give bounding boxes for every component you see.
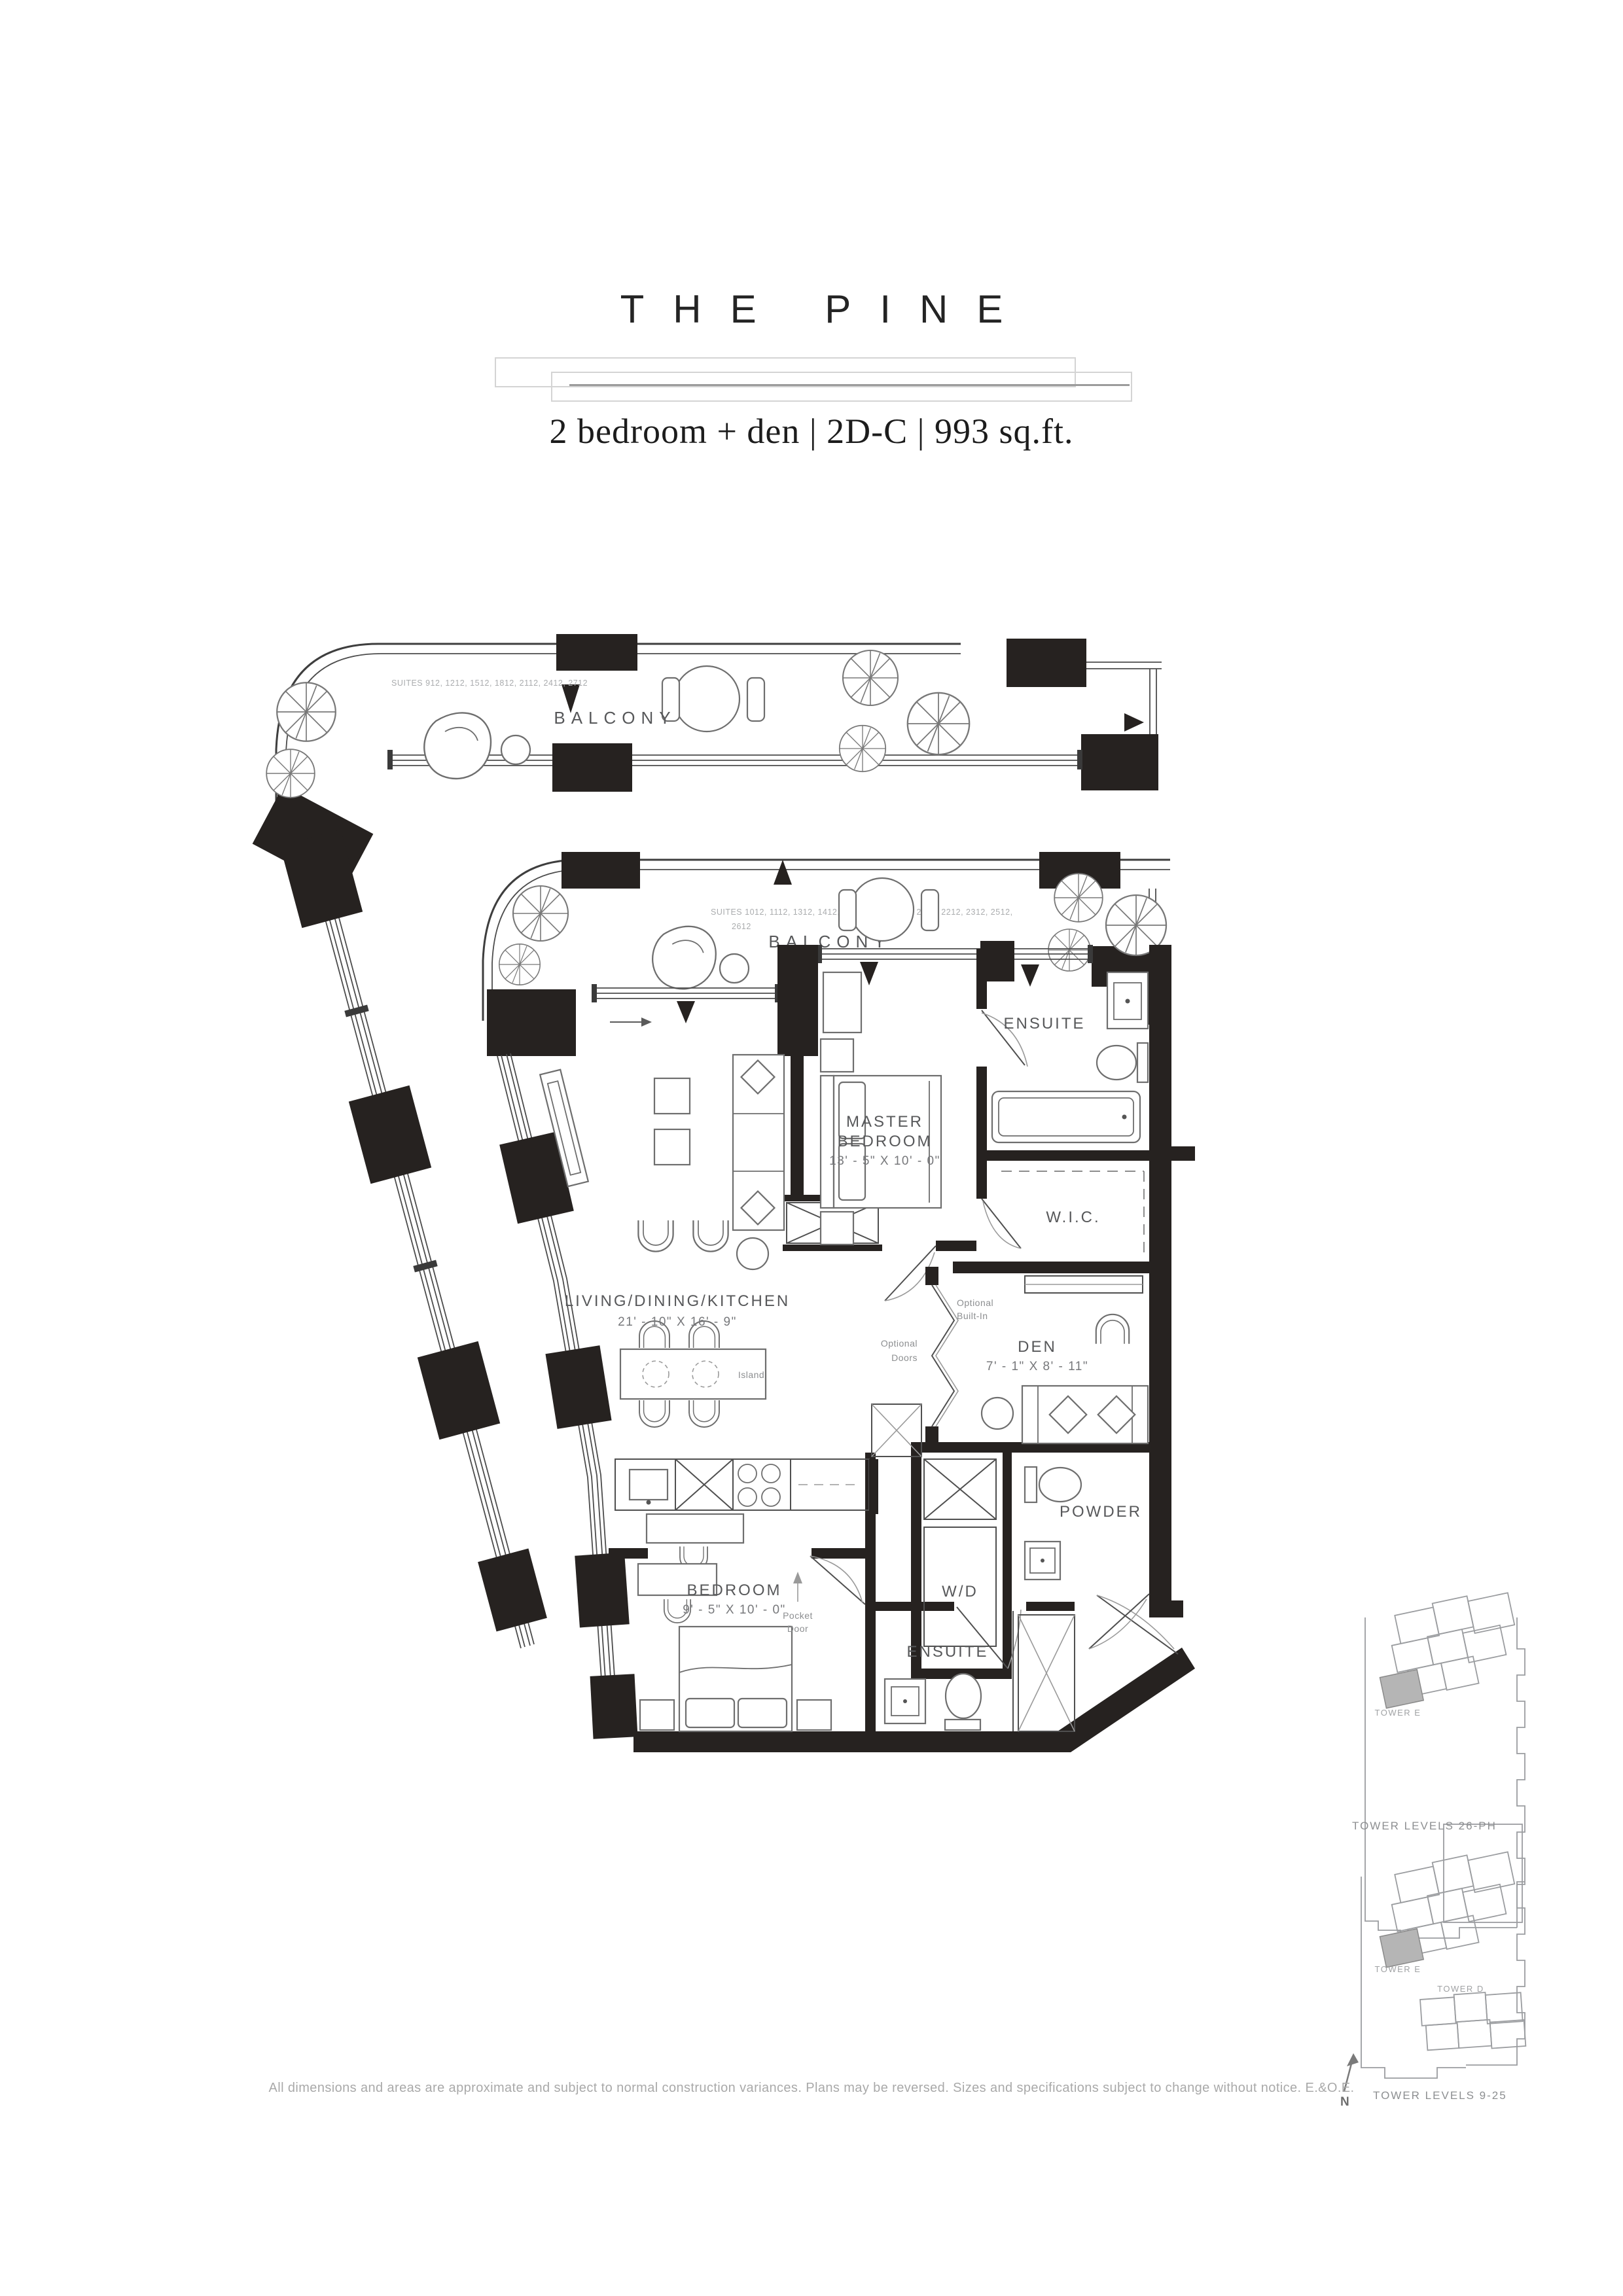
- tree-icon: [1054, 874, 1103, 922]
- tree-icon: [499, 944, 540, 985]
- headboard: [821, 1076, 834, 1208]
- bathtub: [992, 1091, 1140, 1142]
- toilet: [1097, 1046, 1136, 1080]
- burner: [762, 1488, 780, 1506]
- furniture: [540, 972, 1149, 1731]
- highlighted-unit: [1380, 1670, 1423, 1708]
- wic-label: W.I.C.: [1046, 1209, 1100, 1226]
- den-label: DEN: [1018, 1338, 1057, 1356]
- toilet-tank: [1025, 1467, 1037, 1502]
- dining-chair: [689, 1400, 719, 1427]
- dresser: [823, 972, 861, 1033]
- toilet-tank: [945, 1720, 980, 1730]
- upper-balcony: SUITES 912, 1212, 1512, 1812, 2112, 2412…: [253, 634, 1162, 892]
- floorplan-page: THE PINE 2 bedroom + den | 2D-C | 993 sq…: [0, 0, 1623, 2296]
- bedroom-label: BEDROOM: [687, 1581, 781, 1599]
- keyplan-upper-caption: TOWER LEVELS 26-PH: [1352, 1820, 1497, 1832]
- suites-note-main-2: 2612: [732, 922, 751, 931]
- nightstand: [821, 1039, 853, 1072]
- toilet: [946, 1674, 981, 1718]
- kitchen-sink: [630, 1470, 668, 1500]
- side-table: [982, 1398, 1013, 1429]
- tree-icon: [266, 749, 315, 798]
- dining-chair: [639, 1400, 669, 1427]
- suites-note-upper: SUITES 912, 1212, 1512, 1812, 2112, 2412…: [391, 679, 588, 688]
- den-dims: 7' - 1" X 8' - 11": [986, 1360, 1088, 1373]
- armchair: [638, 1220, 673, 1252]
- burner: [762, 1464, 780, 1483]
- balcony-label-upper: BALCONY: [554, 708, 676, 728]
- powder-label: POWDER: [1060, 1503, 1142, 1521]
- nightstand: [821, 1212, 853, 1245]
- living-label: LIVING/DINING/KITCHEN: [565, 1292, 790, 1310]
- patio-table: [674, 666, 740, 732]
- tower-d-label: TOWER D: [1437, 1984, 1484, 1994]
- floorplan-drawing: SUITES 912, 1212, 1512, 1812, 2112, 2412…: [0, 0, 1623, 2296]
- living-dims: 21' - 10" X 16' - 9": [618, 1315, 737, 1329]
- master-label-2: BEDROOM: [837, 1133, 932, 1150]
- bedroom-dims: 9' - 5" X 10' - 0": [683, 1603, 786, 1617]
- keyplan-lower: TOWER E TOWER D N TOWER LEVELS 9-25: [1340, 1846, 1526, 2109]
- highlighted-unit: [1380, 1929, 1423, 1968]
- north-label: N: [1340, 2095, 1350, 2109]
- lounge-chair: [424, 713, 491, 779]
- den-chair: [1096, 1315, 1129, 1344]
- optional-builtin-note-2: Built-In: [957, 1311, 988, 1321]
- breakfast-desk: [647, 1514, 743, 1543]
- tree-icon: [908, 693, 969, 754]
- burner: [738, 1464, 757, 1483]
- tree-icon: [1048, 929, 1090, 971]
- optional-builtin-note-1: Optional: [957, 1298, 993, 1308]
- tree-icon: [843, 650, 898, 705]
- disclaimer: All dimensions and areas are approximate…: [0, 2081, 1623, 2096]
- toilet-tank: [1137, 1043, 1148, 1082]
- pillow: [738, 1699, 787, 1727]
- wd-label: W/D: [942, 1583, 978, 1600]
- side-table: [654, 1078, 690, 1114]
- toilet: [1039, 1468, 1081, 1502]
- tree-icon: [840, 726, 885, 771]
- burner: [738, 1488, 757, 1506]
- tower-e-label-lower: TOWER E: [1375, 1964, 1421, 1974]
- tree-icon: [513, 886, 568, 941]
- ottoman: [737, 1238, 768, 1269]
- tower-e-label-upper: TOWER E: [1375, 1708, 1421, 1718]
- pocket-door-note-2: Door: [787, 1623, 808, 1634]
- patio-table: [851, 878, 914, 941]
- island-note: Island: [738, 1369, 764, 1380]
- pillow: [839, 1144, 865, 1200]
- nightstand: [640, 1700, 674, 1730]
- wall-pier: [556, 634, 637, 671]
- nightstand: [797, 1700, 831, 1730]
- optional-doors-note-2: Doors: [891, 1352, 918, 1363]
- ensuite-top-label: ENSUITE: [1003, 1015, 1085, 1033]
- master-label-1: MASTER: [846, 1113, 923, 1131]
- lounge-chair: [652, 927, 716, 989]
- side-table: [654, 1129, 690, 1165]
- optional-doors-note-1: Optional: [881, 1338, 918, 1349]
- master-dims: 13' - 5" X 10' - 0": [829, 1154, 940, 1168]
- tree-icon: [277, 682, 336, 741]
- ensuite-bottom-label: ENSUITE: [906, 1643, 988, 1661]
- pocket-door-note-1: Pocket: [783, 1610, 813, 1621]
- armchair: [693, 1220, 728, 1252]
- pillow: [686, 1699, 734, 1727]
